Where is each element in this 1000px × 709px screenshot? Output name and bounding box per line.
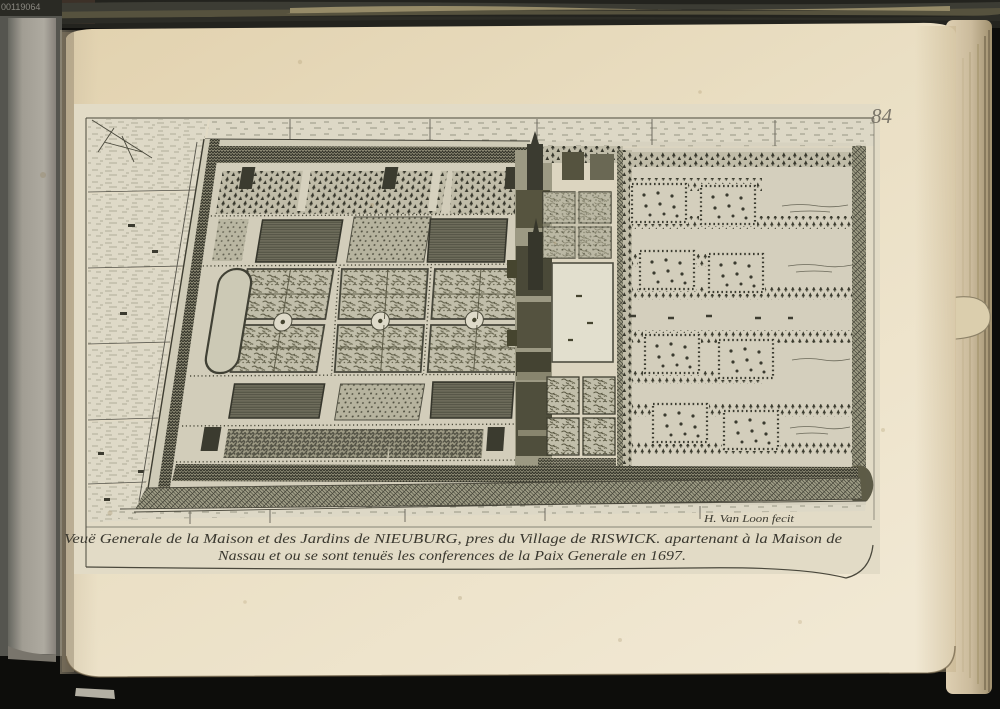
svg-text:Nassau et ou se sont tenuës le: Nassau et ou se sont tenuës les conferen… [217,549,686,564]
svg-text:84: 84 [871,104,893,128]
svg-text:Veuë Generale de la Maison et: Veuë Generale de la Maison et des Jardin… [64,532,842,547]
svg-text:00119064: 00119064 [1,2,40,12]
svg-text:H. Van Loon fecit: H. Van Loon fecit [703,514,795,525]
